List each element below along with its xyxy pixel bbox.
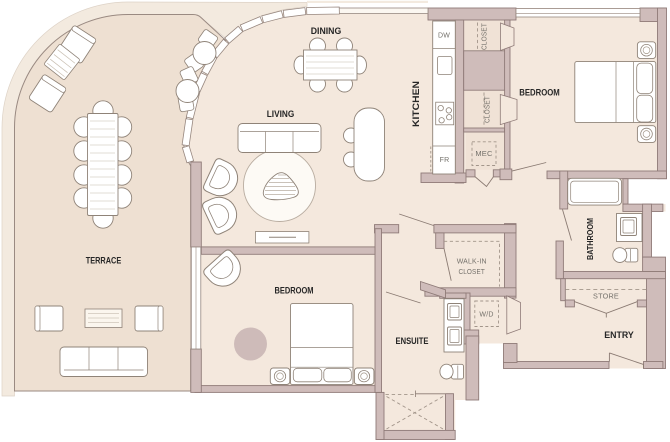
svg-text:WALK-IN: WALK-IN (457, 257, 487, 266)
svg-text:CLOSET: CLOSET (458, 267, 485, 276)
svg-text:ENSUITE: ENSUITE (396, 336, 429, 346)
svg-text:CLOSET: CLOSET (485, 96, 492, 123)
svg-text:MEC: MEC (475, 149, 493, 158)
svg-text:W/D: W/D (479, 311, 493, 318)
svg-text:BATHROOM: BATHROOM (585, 218, 595, 260)
svg-text:STORE: STORE (593, 292, 619, 301)
svg-text:DW: DW (438, 33, 450, 40)
svg-text:KITCHEN: KITCHEN (411, 81, 421, 127)
svg-text:BEDROOM: BEDROOM (275, 286, 314, 296)
svg-text:CLOSET: CLOSET (482, 23, 489, 50)
svg-text:BEDROOM: BEDROOM (519, 88, 560, 98)
svg-text:DINING: DINING (311, 26, 342, 36)
svg-text:TERRACE: TERRACE (86, 256, 122, 266)
svg-text:FR: FR (440, 157, 450, 164)
svg-text:LIVING: LIVING (267, 109, 295, 119)
svg-text:ENTRY: ENTRY (604, 330, 634, 340)
